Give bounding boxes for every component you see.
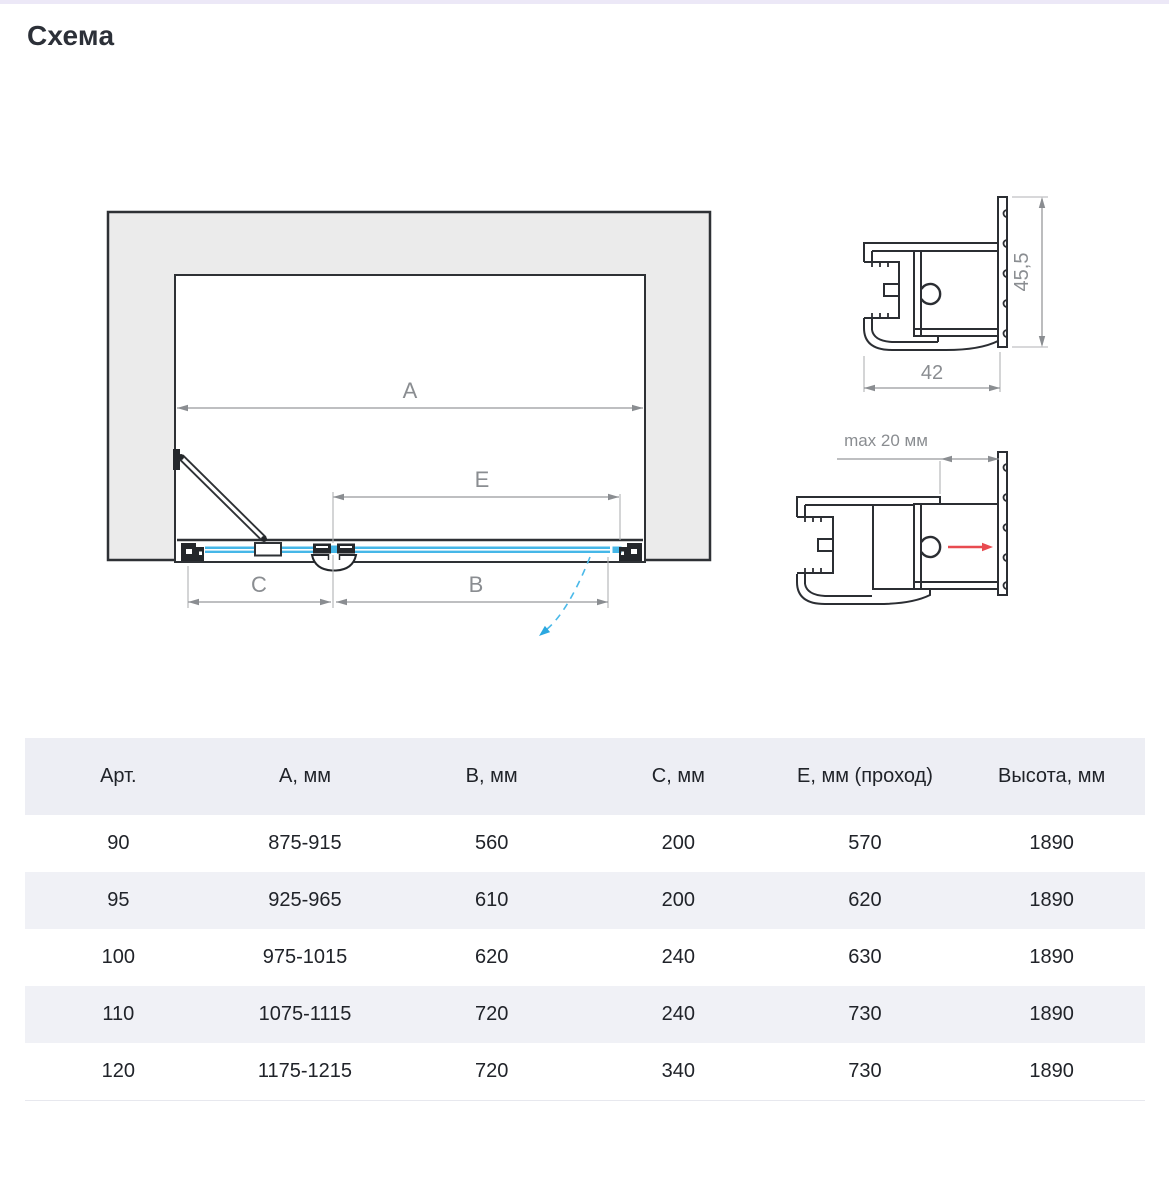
table-cell: 620 (398, 929, 585, 986)
table-cell: 95 (25, 872, 212, 929)
table-cell: 560 (398, 815, 585, 872)
table-cell: 340 (585, 1043, 772, 1101)
col-header-a: А, мм (212, 738, 399, 815)
door-swing-arc (539, 557, 590, 636)
max-gap-dimension: max 20 мм (844, 431, 928, 450)
table-cell: 240 (585, 986, 772, 1043)
table-cell: 630 (772, 929, 959, 986)
table-cell: 1890 (958, 986, 1145, 1043)
table-cell: 200 (585, 815, 772, 872)
col-header-e: Е, мм (проход) (772, 738, 959, 815)
installation-scheme-diagram: A E C B (0, 150, 1169, 710)
dimension-e-label: E (475, 467, 490, 492)
table-cell: 570 (772, 815, 959, 872)
col-header-b: В, мм (398, 738, 585, 815)
table-header-row: Арт. А, мм В, мм С, мм Е, мм (проход) Вы… (25, 738, 1145, 815)
table-cell: 1890 (958, 872, 1145, 929)
table-row: 95 925-965 610 200 620 1890 (25, 872, 1145, 929)
table-cell: 730 (772, 1043, 959, 1101)
table-cell: 720 (398, 986, 585, 1043)
col-header-art: Арт. (25, 738, 212, 815)
center-connector (312, 544, 356, 571)
table-cell: 975-1015 (212, 929, 399, 986)
table-row: 100 975-1015 620 240 630 1890 (25, 929, 1145, 986)
col-header-height: Высота, мм (958, 738, 1145, 815)
dimension-a-label: A (403, 378, 418, 403)
dimension-c-label: C (251, 572, 267, 597)
table-row: 120 1175-1215 720 340 730 1890 (25, 1043, 1145, 1101)
table-row: 110 1075-1115 720 240 730 1890 (25, 986, 1145, 1043)
profile-section-top: 45,5 42 (858, 197, 1048, 392)
table-cell: 1175-1215 (212, 1043, 399, 1101)
table-row: 90 875-915 560 200 570 1890 (25, 815, 1145, 872)
profile-height-dimension: 45,5 (1011, 253, 1033, 292)
dimensions-table: Арт. А, мм В, мм С, мм Е, мм (проход) Вы… (25, 738, 1145, 1101)
table-cell: 120 (25, 1043, 212, 1101)
table-cell: 110 (25, 986, 212, 1043)
page-title: Схема (27, 20, 114, 52)
support-bar-clamp (255, 543, 281, 556)
table-cell: 620 (772, 872, 959, 929)
table-cell: 1890 (958, 815, 1145, 872)
table-cell: 1890 (958, 929, 1145, 986)
profile-width-dimension: 42 (921, 362, 943, 384)
table-cell: 90 (25, 815, 212, 872)
table-cell: 875-915 (212, 815, 399, 872)
table-cell: 720 (398, 1043, 585, 1101)
table-cell: 730 (772, 986, 959, 1043)
table-cell: 240 (585, 929, 772, 986)
col-header-c: С, мм (585, 738, 772, 815)
table-cell: 1890 (958, 1043, 1145, 1101)
table-cell: 100 (25, 929, 212, 986)
table-cell: 925-965 (212, 872, 399, 929)
profile-section-bottom: max 20 мм (791, 431, 1007, 604)
dimension-b-label: B (469, 572, 484, 597)
table-cell: 200 (585, 872, 772, 929)
table-cell: 610 (398, 872, 585, 929)
top-accent-strip (0, 0, 1169, 4)
table-cell: 1075-1115 (212, 986, 399, 1043)
